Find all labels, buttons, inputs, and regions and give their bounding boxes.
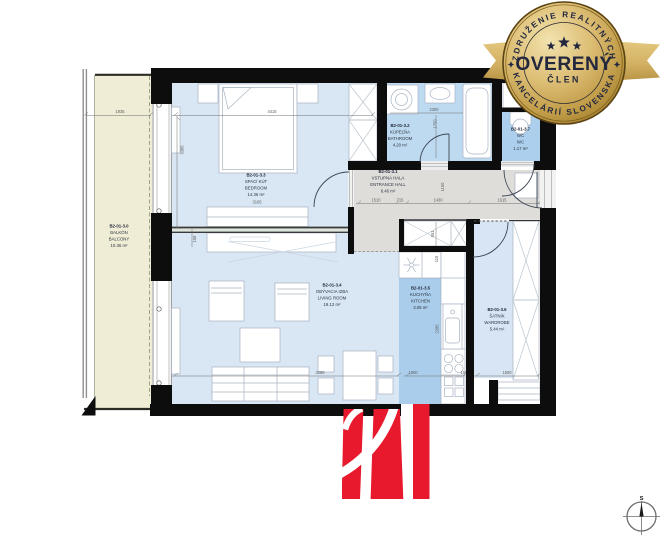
svg-text:3285: 3285 <box>315 370 325 375</box>
svg-text:4.20 m²: 4.20 m² <box>393 143 408 148</box>
svg-text:B2-01-3.2: B2-01-3.2 <box>390 123 410 128</box>
svg-text:1500: 1500 <box>408 370 418 375</box>
svg-text:KÚPEĽŇA: KÚPEĽŇA <box>390 130 410 135</box>
svg-text:WC: WC <box>517 133 524 138</box>
svg-text:BALKÓN: BALKÓN <box>110 230 127 235</box>
svg-text:1510: 1510 <box>371 198 381 203</box>
svg-text:651: 651 <box>430 230 435 238</box>
svg-text:1750: 1750 <box>433 119 438 129</box>
svg-text:3165: 3165 <box>252 200 262 205</box>
svg-text:BALCONY: BALCONY <box>109 237 130 242</box>
svg-text:1150: 1150 <box>440 182 445 192</box>
svg-text:3.08 m²: 3.08 m² <box>413 305 428 310</box>
svg-text:OBÝVACIA IZBA: OBÝVACIA IZBA <box>316 289 348 294</box>
svg-text:BATHROOM: BATHROOM <box>388 136 413 141</box>
svg-text:WARDROBE: WARDROBE <box>484 320 509 325</box>
svg-text:5.44 m²: 5.44 m² <box>490 327 505 332</box>
svg-text:ŠATNÍK: ŠATNÍK <box>489 314 504 319</box>
svg-text:B2-01-3.5: B2-01-3.5 <box>411 286 431 291</box>
svg-text:OVERENÝ: OVERENÝ <box>515 53 612 75</box>
svg-text:1935: 1935 <box>115 109 125 114</box>
svg-text:14.36 m²: 14.36 m² <box>248 192 266 197</box>
svg-text:KUCHYŇA: KUCHYŇA <box>410 292 431 297</box>
svg-text:BEDROOM: BEDROOM <box>245 186 268 191</box>
svg-text:2285: 2285 <box>435 324 440 334</box>
svg-text:1615: 1615 <box>497 198 507 203</box>
svg-text:168: 168 <box>192 235 197 243</box>
svg-text:WC: WC <box>517 140 524 145</box>
svg-text:B2-01-3.4: B2-01-3.4 <box>322 283 342 288</box>
svg-text:B2-01-3.7: B2-01-3.7 <box>511 127 531 132</box>
svg-text:4415: 4415 <box>267 109 277 114</box>
svg-text:LIVING ROOM: LIVING ROOM <box>318 296 347 301</box>
svg-text:2300: 2300 <box>429 107 439 112</box>
svg-text:ENTRANCE HALL: ENTRANCE HALL <box>370 182 406 187</box>
svg-text:115: 115 <box>434 255 439 262</box>
svg-text:1500: 1500 <box>502 370 512 375</box>
svg-text:B2-01-3.3: B2-01-3.3 <box>246 173 266 178</box>
svg-text:1430: 1430 <box>433 198 443 203</box>
svg-text:3385: 3385 <box>180 145 185 155</box>
svg-text:715: 715 <box>397 198 405 203</box>
svg-text:19.12 m²: 19.12 m² <box>324 302 342 307</box>
svg-text:B2-01-3.0: B2-01-3.0 <box>109 224 129 229</box>
svg-text:KITCHEN: KITCHEN <box>411 299 430 304</box>
svg-text:6.46 m²: 6.46 m² <box>381 189 396 194</box>
svg-text:SPACÍ KÚT: SPACÍ KÚT <box>245 179 268 184</box>
svg-text:VSTUPNÁ HALA: VSTUPNÁ HALA <box>372 176 405 181</box>
svg-text:10.36 m²: 10.36 m² <box>111 243 129 248</box>
svg-text:ČLEN: ČLEN <box>547 74 581 85</box>
svg-text:B2-01-3.6: B2-01-3.6 <box>487 307 507 312</box>
svg-text:1.17 m²: 1.17 m² <box>513 146 528 151</box>
svg-text:S: S <box>640 496 644 502</box>
